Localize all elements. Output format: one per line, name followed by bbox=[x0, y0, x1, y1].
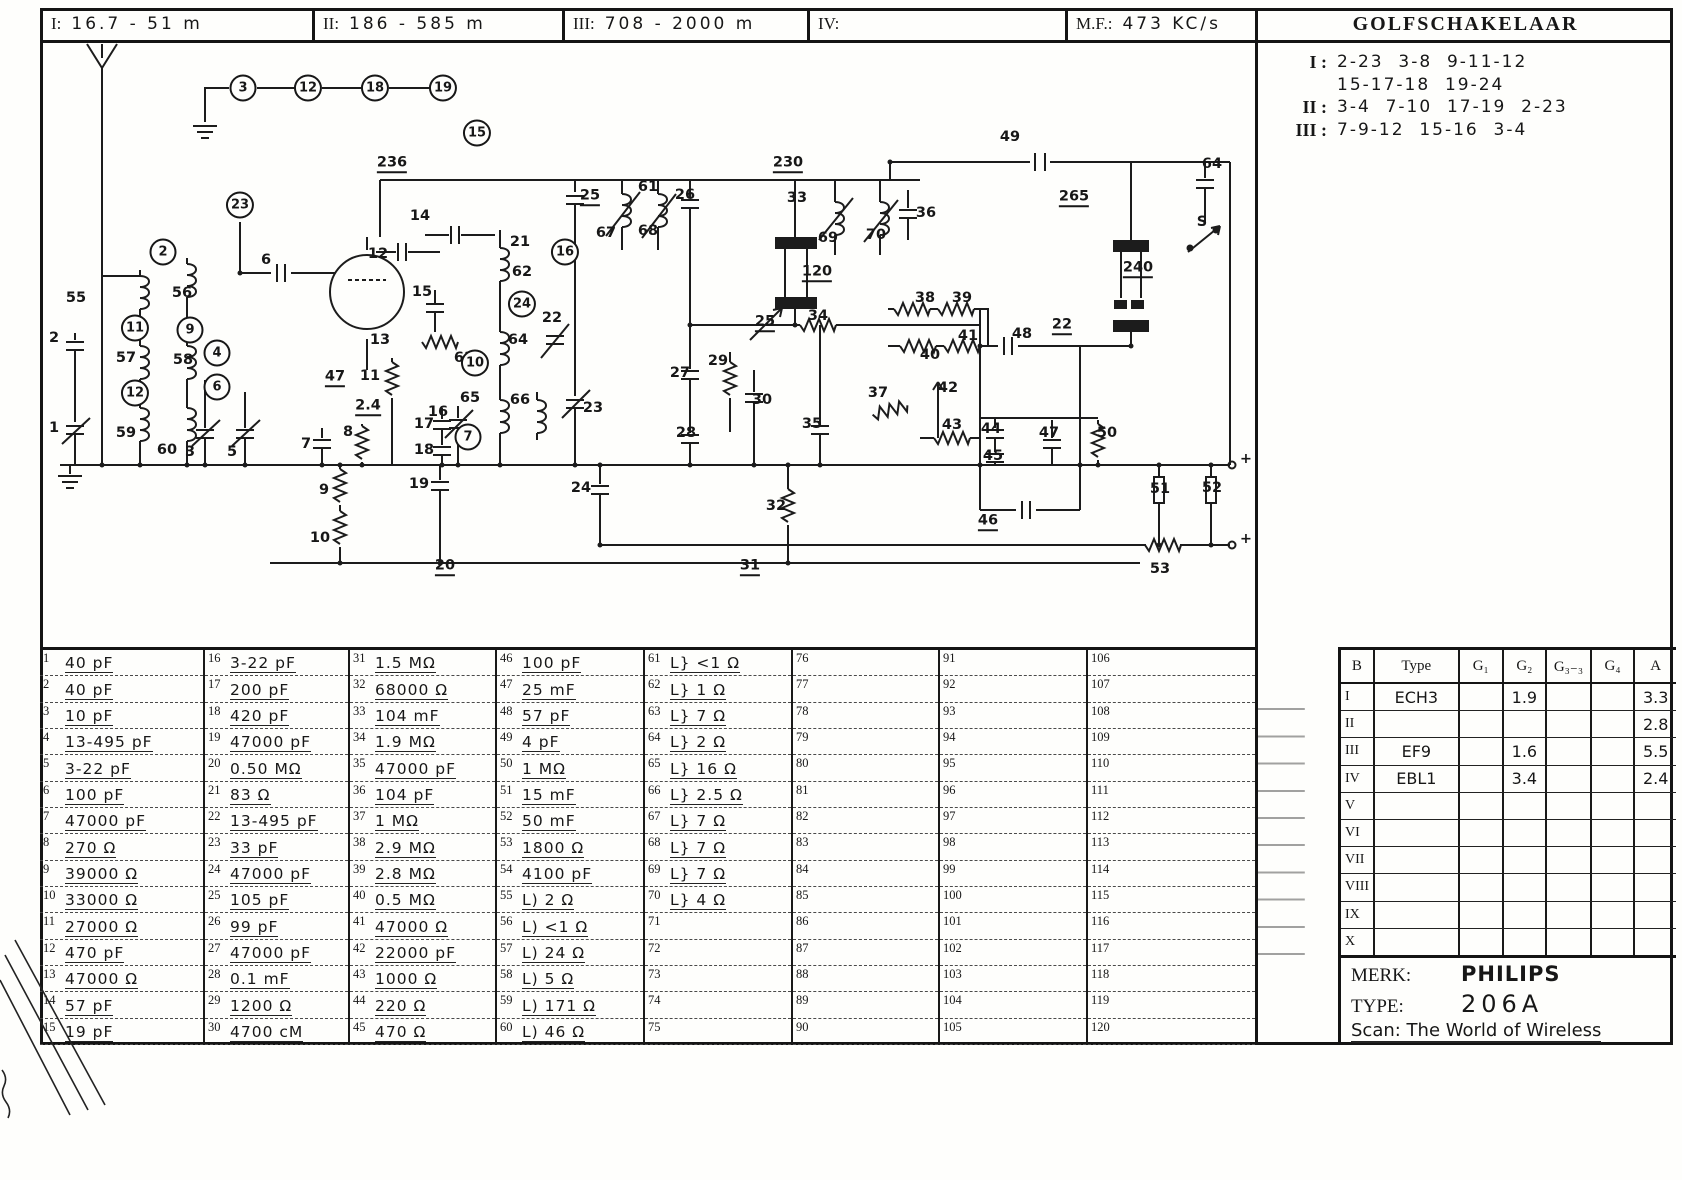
golf-line: I : 2-23 3-8 9-11-12 bbox=[1285, 52, 1670, 73]
part-value: L} 7 Ω bbox=[670, 812, 726, 831]
mf-cell: M.F.: 473 KC/s bbox=[1068, 8, 1255, 40]
component-ref-label: 9 bbox=[319, 483, 329, 498]
part-row: 5115 mF bbox=[497, 782, 643, 808]
part-row: 91 bbox=[940, 650, 1086, 676]
band-2-label: II: bbox=[323, 14, 339, 34]
part-number: 24 bbox=[208, 862, 230, 877]
component-ref-label: 25 bbox=[580, 188, 600, 206]
tube-cell bbox=[1592, 847, 1636, 873]
component-ref-label: 53 bbox=[1150, 562, 1170, 577]
part-value: 1200 Ω bbox=[230, 997, 292, 1016]
component-ref-label: 51 bbox=[1150, 482, 1170, 497]
part-row: 3547000 pF bbox=[350, 755, 495, 781]
component-ref-label: 3 bbox=[230, 75, 257, 102]
part-number: 94 bbox=[943, 730, 965, 745]
part-value: 1800 Ω bbox=[522, 839, 584, 858]
part-number: 88 bbox=[796, 967, 818, 982]
part-number: 20 bbox=[208, 756, 230, 771]
component-ref-label: 10 bbox=[310, 531, 330, 546]
part-row: 45470 Ω bbox=[350, 1019, 495, 1045]
band-cell-1: I: 16.7 - 51 m bbox=[43, 8, 315, 40]
component-ref-label: 50 bbox=[1097, 426, 1117, 441]
part-row: 304700 cM bbox=[205, 1019, 348, 1045]
tube-cell bbox=[1547, 711, 1592, 737]
tube-cell: I bbox=[1341, 684, 1375, 710]
component-ref-label: 9 bbox=[177, 317, 204, 344]
tube-cell: VIII bbox=[1341, 874, 1375, 900]
part-number: 89 bbox=[796, 993, 818, 1008]
part-number: 45 bbox=[353, 1020, 375, 1035]
part-row: 120 bbox=[1088, 1019, 1255, 1045]
part-number: 19 bbox=[208, 730, 230, 745]
part-row: 65L} 16 Ω bbox=[645, 755, 791, 781]
part-number: 82 bbox=[796, 809, 818, 824]
component-ref-label: 7 bbox=[455, 424, 482, 451]
golf-roman: II : bbox=[1285, 97, 1327, 118]
part-row: 119 bbox=[1088, 992, 1255, 1018]
part-number: 119 bbox=[1091, 993, 1113, 1008]
component-ref-label: 18 bbox=[414, 443, 434, 458]
part-row: 36104 pF bbox=[350, 782, 495, 808]
component-ref-label: 19 bbox=[409, 477, 429, 492]
component-ref-label: 24 bbox=[571, 481, 591, 496]
tube-cell bbox=[1635, 874, 1676, 900]
part-value: 50 mF bbox=[522, 812, 576, 831]
tube-cell: 3.3 bbox=[1635, 684, 1676, 710]
tube-cell bbox=[1635, 820, 1676, 846]
part-row: 2213-495 pF bbox=[205, 808, 348, 834]
part-row: 33104 mF bbox=[350, 703, 495, 729]
component-ref-label: 26 bbox=[675, 188, 695, 203]
part-row: 96 bbox=[940, 782, 1086, 808]
component-ref-label: 12 bbox=[368, 247, 388, 262]
component-ref-label: 8 bbox=[343, 425, 353, 440]
component-ref-label: 120 bbox=[802, 264, 832, 282]
tube-header-row: BTypeG₁G₂G₃₋₃G₄A bbox=[1341, 650, 1676, 684]
band-4-label: IV: bbox=[818, 14, 839, 34]
tube-row: IX bbox=[1341, 902, 1676, 929]
part-number: 30 bbox=[208, 1020, 230, 1035]
part-number: 97 bbox=[943, 809, 965, 824]
tube-cell bbox=[1547, 929, 1592, 955]
part-row: 74 bbox=[645, 992, 791, 1018]
golf-roman: I : bbox=[1285, 52, 1327, 73]
part-number: 101 bbox=[943, 914, 965, 929]
part-number: 92 bbox=[943, 677, 965, 692]
component-ref-label: 20 bbox=[435, 558, 455, 576]
part-number: 36 bbox=[353, 783, 375, 798]
part-value: 104 mF bbox=[375, 707, 440, 726]
part-row: 53-22 pF bbox=[40, 755, 203, 781]
part-value: L} 7 Ω bbox=[670, 707, 726, 726]
tube-cell bbox=[1504, 902, 1548, 928]
component-ref-label: 67 bbox=[596, 226, 616, 241]
component-ref-label: 24 bbox=[508, 291, 536, 318]
part-row: 103 bbox=[940, 966, 1086, 992]
part-row: 114 bbox=[1088, 861, 1255, 887]
tube-cell bbox=[1592, 929, 1636, 955]
part-row: 82 bbox=[793, 808, 938, 834]
part-row: 17200 pF bbox=[205, 676, 348, 702]
parts-column: 767778798081828384858687888990 bbox=[793, 650, 940, 1045]
component-ref-label: 48 bbox=[1012, 327, 1032, 342]
component-ref-label: 34 bbox=[808, 309, 828, 324]
part-row: 4222000 pF bbox=[350, 940, 495, 966]
part-number: 107 bbox=[1091, 677, 1113, 692]
part-number: 58 bbox=[500, 967, 522, 982]
part-number: 3 bbox=[43, 704, 65, 719]
merk-row: MERK: PHILIPS bbox=[1351, 962, 1676, 990]
component-ref-label: 23 bbox=[226, 192, 254, 219]
component-ref-label: 58 bbox=[173, 353, 193, 368]
parts-column: 311.5 MΩ3268000 Ω33104 mF341.9 MΩ3547000… bbox=[350, 650, 497, 1045]
tube-cell bbox=[1375, 902, 1460, 928]
part-number: 5 bbox=[43, 756, 65, 771]
part-number: 93 bbox=[943, 704, 965, 719]
part-value: 4100 pF bbox=[522, 865, 592, 884]
component-ref-label: 18 bbox=[361, 75, 389, 102]
part-number: 48 bbox=[500, 704, 522, 719]
part-value: 83 Ω bbox=[230, 786, 271, 805]
part-number: 29 bbox=[208, 993, 230, 1008]
parts-column: 46100 pF4725 mF4857 pF494 pF501 MΩ5115 m… bbox=[497, 650, 645, 1045]
tube-cell bbox=[1375, 711, 1460, 737]
tube-cell: ECH3 bbox=[1375, 684, 1460, 710]
brand-block: MERK: PHILIPS TYPE: 206A Scan: The World… bbox=[1338, 955, 1676, 1045]
part-number: 21 bbox=[208, 783, 230, 798]
golf-text: 7-9-12 15-16 3-4 bbox=[1337, 120, 1527, 141]
part-number: 74 bbox=[648, 993, 670, 1008]
part-value: 22000 pF bbox=[375, 944, 456, 963]
component-ref-label: 35 bbox=[802, 417, 822, 432]
part-number: 16 bbox=[208, 651, 230, 666]
part-number: 117 bbox=[1091, 941, 1113, 956]
part-number: 70 bbox=[648, 888, 670, 903]
tube-cell bbox=[1504, 929, 1548, 955]
part-value: 47000 pF bbox=[230, 733, 311, 752]
tube-cell bbox=[1460, 793, 1504, 819]
part-number: 85 bbox=[796, 888, 818, 903]
tube-cell bbox=[1375, 820, 1460, 846]
tube-cell: VI bbox=[1341, 820, 1375, 846]
part-value: 47000 pF bbox=[65, 812, 146, 831]
tube-cell: 2.4 bbox=[1635, 766, 1676, 792]
scan-credit: Scan: The World of Wireless bbox=[1351, 1020, 1601, 1043]
golf-line: 15-17-18 19-24 bbox=[1285, 75, 1670, 95]
part-number: 73 bbox=[648, 967, 670, 982]
part-number: 54 bbox=[500, 862, 522, 877]
component-ref-label: 2 bbox=[150, 239, 177, 266]
part-value: 40 pF bbox=[65, 681, 113, 700]
part-row: 291200 Ω bbox=[205, 992, 348, 1018]
part-number: 77 bbox=[796, 677, 818, 692]
part-row: 87 bbox=[793, 940, 938, 966]
part-row: 75 bbox=[645, 1019, 791, 1045]
component-ref-label: 32 bbox=[766, 499, 786, 514]
part-value: 105 pF bbox=[230, 891, 289, 910]
part-row: 70L} 4 Ω bbox=[645, 887, 791, 913]
component-ref-label: 60 bbox=[157, 443, 177, 458]
tube-cell bbox=[1592, 820, 1636, 846]
part-number: 6 bbox=[43, 783, 65, 798]
part-value: L) 24 Ω bbox=[522, 944, 585, 963]
component-ref-label: 10 bbox=[461, 350, 489, 377]
part-number: 32 bbox=[353, 677, 375, 692]
merk-value: PHILIPS bbox=[1461, 962, 1561, 986]
part-number: 120 bbox=[1091, 1020, 1113, 1035]
mf-label: M.F.: bbox=[1076, 14, 1112, 34]
part-row: 89 bbox=[793, 992, 938, 1018]
parts-column: 919293949596979899100101102103104105 bbox=[940, 650, 1088, 1045]
part-value: 47000 pF bbox=[375, 760, 456, 779]
component-ref-label: 21 bbox=[510, 235, 530, 250]
part-value: L} 1 Ω bbox=[670, 681, 726, 700]
tube-cell: II bbox=[1341, 711, 1375, 737]
tube-row: X bbox=[1341, 929, 1676, 956]
part-value: 420 pF bbox=[230, 707, 289, 726]
part-number: 1 bbox=[43, 651, 65, 666]
type-row: TYPE: 206A bbox=[1351, 990, 1676, 1018]
part-number: 91 bbox=[943, 651, 965, 666]
golf-roman bbox=[1285, 75, 1327, 95]
part-number: 23 bbox=[208, 835, 230, 850]
part-row: 140 pF bbox=[40, 650, 203, 676]
tube-row: VIII bbox=[1341, 874, 1676, 901]
part-row: 98 bbox=[940, 834, 1086, 860]
part-row: 57L) 24 Ω bbox=[497, 940, 643, 966]
part-row: 5250 mF bbox=[497, 808, 643, 834]
part-row: 101 bbox=[940, 913, 1086, 939]
part-number: 110 bbox=[1091, 756, 1113, 771]
tube-row: V bbox=[1341, 793, 1676, 820]
part-row: 95 bbox=[940, 755, 1086, 781]
part-number: 18 bbox=[208, 704, 230, 719]
part-number: 39 bbox=[353, 862, 375, 877]
part-value: 1 MΩ bbox=[375, 812, 419, 831]
band-2-value: 186 - 585 m bbox=[349, 14, 486, 34]
part-number: 78 bbox=[796, 704, 818, 719]
part-number: 80 bbox=[796, 756, 818, 771]
part-number: 35 bbox=[353, 756, 375, 771]
part-number: 84 bbox=[796, 862, 818, 877]
component-ref-label: 40 bbox=[920, 348, 940, 363]
part-row: 99 bbox=[940, 861, 1086, 887]
part-number: 53 bbox=[500, 835, 522, 850]
part-number: 59 bbox=[500, 993, 522, 1008]
tube-header-cell: G₃₋₃ bbox=[1547, 650, 1592, 682]
band-cell-2: II: 186 - 585 m bbox=[315, 8, 565, 40]
tube-header-cell: G₂ bbox=[1504, 650, 1548, 682]
part-row: 106 bbox=[1088, 650, 1255, 676]
part-number: 90 bbox=[796, 1020, 818, 1035]
tube-cell bbox=[1592, 874, 1636, 900]
part-number: 96 bbox=[943, 783, 965, 798]
tube-cell bbox=[1635, 847, 1676, 873]
part-number: 95 bbox=[943, 756, 965, 771]
part-value: 47000 pF bbox=[230, 944, 311, 963]
component-ref-label: 6 bbox=[204, 374, 231, 401]
part-number: 4 bbox=[43, 730, 65, 745]
part-number: 72 bbox=[648, 941, 670, 956]
part-number: 41 bbox=[353, 914, 375, 929]
part-row: 400.5 MΩ bbox=[350, 887, 495, 913]
part-number: 105 bbox=[943, 1020, 965, 1035]
part-value: L} 4 Ω bbox=[670, 891, 726, 910]
component-ref-label: 46 bbox=[978, 513, 998, 531]
tube-cell bbox=[1504, 793, 1548, 819]
part-value: 1.9 MΩ bbox=[375, 733, 436, 752]
part-row: 59L) 171 Ω bbox=[497, 992, 643, 1018]
tube-cell bbox=[1592, 684, 1636, 710]
tube-row: II2.8 bbox=[1341, 711, 1676, 738]
tube-cell bbox=[1547, 738, 1592, 764]
part-number: 10 bbox=[43, 888, 65, 903]
part-row: 4857 pF bbox=[497, 703, 643, 729]
part-value: 100 pF bbox=[522, 654, 581, 673]
part-row: 60L) 46 Ω bbox=[497, 1019, 643, 1045]
part-number: 42 bbox=[353, 941, 375, 956]
part-number: 114 bbox=[1091, 862, 1113, 877]
part-value: 68000 Ω bbox=[375, 681, 448, 700]
tube-table: BTypeG₁G₂G₃₋₃G₄AIECH31.93.3II2.8IIIEF91.… bbox=[1338, 647, 1676, 955]
parts-table: 140 pF240 pF310 pF413-495 pF53-22 pF6100… bbox=[40, 647, 1255, 1045]
golfschakelaar-title: GOLFSCHAKELAAR bbox=[1353, 13, 1579, 36]
component-ref-label: 11 bbox=[360, 369, 380, 384]
part-number: 22 bbox=[208, 809, 230, 824]
component-ref-label: 265 bbox=[1059, 189, 1089, 207]
part-value: 0.5 MΩ bbox=[375, 891, 436, 910]
tube-cell: X bbox=[1341, 929, 1375, 955]
part-row: 109 bbox=[1088, 729, 1255, 755]
part-row: 501 MΩ bbox=[497, 755, 643, 781]
type-value: 206A bbox=[1461, 990, 1543, 1018]
part-number: 33 bbox=[353, 704, 375, 719]
part-number: 100 bbox=[943, 888, 965, 903]
part-value: 0.1 mF bbox=[230, 970, 290, 989]
part-row: 4725 mF bbox=[497, 676, 643, 702]
component-ref-label: 65 bbox=[460, 391, 480, 406]
component-ref-label: 11 bbox=[121, 315, 149, 342]
tube-header-cell: A bbox=[1635, 650, 1676, 682]
tube-cell: III bbox=[1341, 738, 1375, 764]
tube-cell: IX bbox=[1341, 902, 1375, 928]
part-number: 49 bbox=[500, 730, 522, 745]
part-row: 108 bbox=[1088, 703, 1255, 729]
component-ref-label: 33 bbox=[787, 191, 807, 206]
component-ref-label: 56 bbox=[172, 286, 192, 301]
tube-cell bbox=[1547, 874, 1592, 900]
part-row: 1033000 Ω bbox=[40, 887, 203, 913]
part-row: 2333 pF bbox=[205, 834, 348, 860]
part-value: 47000 Ω bbox=[375, 918, 448, 937]
component-ref-label: 12 bbox=[121, 380, 149, 407]
component-ref-label: 23 bbox=[583, 401, 603, 416]
part-row: 240 pF bbox=[40, 676, 203, 702]
tube-cell bbox=[1460, 820, 1504, 846]
tube-row: IIIEF91.65.5 bbox=[1341, 738, 1676, 765]
component-ref-label: 61 bbox=[638, 180, 658, 195]
scanned-service-sheet: I: 16.7 - 51 m II: 186 - 585 m III: 708 … bbox=[0, 0, 1682, 1180]
part-row: 63L} 7 Ω bbox=[645, 703, 791, 729]
part-value: L} 16 Ω bbox=[670, 760, 737, 779]
golfschakelaar-panel: I : 2-23 3-8 9-11-12 15-17-18 19-24 II :… bbox=[1285, 50, 1670, 190]
component-ref-label: 240 bbox=[1123, 260, 1153, 278]
component-ref-label: 2.4 bbox=[355, 398, 381, 416]
part-value: L) 2 Ω bbox=[522, 891, 574, 910]
tube-cell: EBL1 bbox=[1375, 766, 1460, 792]
golfschakelaar-title-cell: GOLFSCHAKELAAR bbox=[1258, 8, 1673, 40]
part-value: L) 171 Ω bbox=[522, 997, 596, 1016]
band-1-value: 16.7 - 51 m bbox=[71, 14, 202, 34]
component-ref-label: 236 bbox=[377, 155, 407, 173]
type-label: TYPE: bbox=[1351, 996, 1461, 1018]
scratch-marks bbox=[0, 920, 140, 1180]
part-number: 44 bbox=[353, 993, 375, 1008]
tube-row: VI bbox=[1341, 820, 1676, 847]
part-value: L} 7 Ω bbox=[670, 839, 726, 858]
part-number: 9 bbox=[43, 862, 65, 877]
component-ref-label: 16 bbox=[551, 239, 579, 266]
merk-label: MERK: bbox=[1351, 965, 1461, 987]
part-row: 531800 Ω bbox=[497, 834, 643, 860]
part-row: 83 bbox=[793, 834, 938, 860]
part-row: 58L) 5 Ω bbox=[497, 966, 643, 992]
part-row: 92 bbox=[940, 676, 1086, 702]
part-row: 55L) 2 Ω bbox=[497, 887, 643, 913]
component-ref-label: 36 bbox=[916, 206, 936, 221]
part-number: 56 bbox=[500, 914, 522, 929]
part-number: 108 bbox=[1091, 704, 1113, 719]
part-number: 17 bbox=[208, 677, 230, 692]
part-row: 67L} 7 Ω bbox=[645, 808, 791, 834]
part-value: 1000 Ω bbox=[375, 970, 437, 989]
golf-text: 3-4 7-10 17-19 2-23 bbox=[1337, 97, 1568, 118]
part-value: 13-495 pF bbox=[65, 733, 153, 752]
part-row: 84 bbox=[793, 861, 938, 887]
part-row: 118 bbox=[1088, 966, 1255, 992]
part-number: 47 bbox=[500, 677, 522, 692]
tube-header-cell: Type bbox=[1375, 650, 1460, 682]
part-row: 2747000 pF bbox=[205, 940, 348, 966]
component-ref-label: + bbox=[1240, 532, 1252, 547]
part-number: 111 bbox=[1091, 783, 1113, 798]
component-ref-label: 62 bbox=[512, 265, 532, 280]
part-row: 56L) <1 Ω bbox=[497, 913, 643, 939]
tube-cell bbox=[1460, 902, 1504, 928]
part-value: 33000 Ω bbox=[65, 891, 138, 910]
part-row: 68L} 7 Ω bbox=[645, 834, 791, 860]
component-ref-label: 1 bbox=[49, 421, 59, 436]
part-value: 33 pF bbox=[230, 839, 278, 858]
mf-value: 473 KC/s bbox=[1122, 14, 1221, 34]
part-number: 81 bbox=[796, 783, 818, 798]
tube-cell: 2.8 bbox=[1635, 711, 1676, 737]
parts-column: 1061071081091101111121131141151161171181… bbox=[1088, 650, 1255, 1045]
tube-cell bbox=[1504, 874, 1548, 900]
component-ref-label: 230 bbox=[773, 155, 803, 173]
tube-cell bbox=[1547, 820, 1592, 846]
part-row: 94 bbox=[940, 729, 1086, 755]
part-row: 3268000 Ω bbox=[350, 676, 495, 702]
part-number: 25 bbox=[208, 888, 230, 903]
part-row: 544100 pF bbox=[497, 861, 643, 887]
part-row: 382.9 MΩ bbox=[350, 834, 495, 860]
part-number: 106 bbox=[1091, 651, 1113, 666]
part-row: 18420 pF bbox=[205, 703, 348, 729]
part-row: 939000 Ω bbox=[40, 861, 203, 887]
part-row: 100 bbox=[940, 887, 1086, 913]
component-ref-label: 28 bbox=[676, 426, 696, 441]
